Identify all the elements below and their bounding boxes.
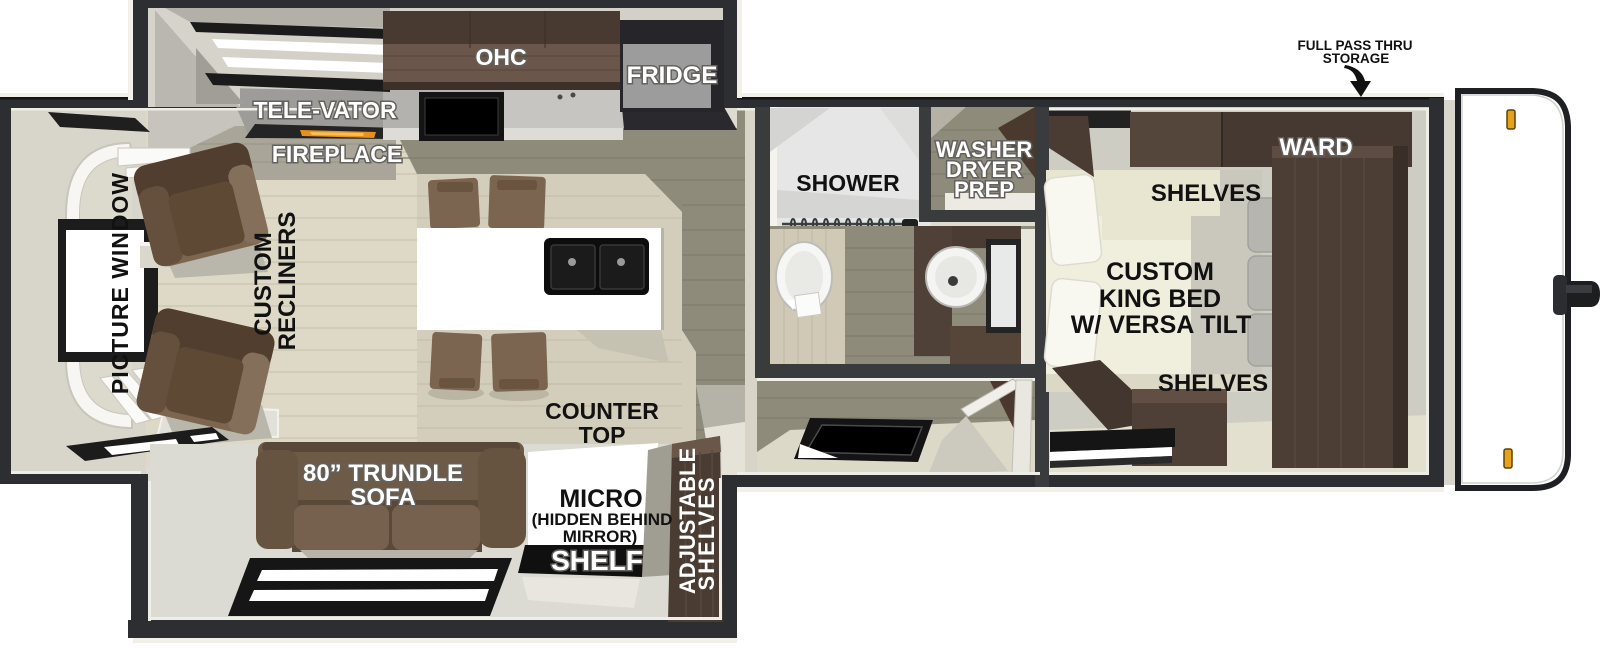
svg-text:MICRO: MICRO bbox=[559, 485, 642, 513]
svg-text:SHELF: SHELF bbox=[551, 545, 643, 576]
svg-text:TOP: TOP bbox=[579, 422, 626, 448]
svg-text:SHELVES: SHELVES bbox=[1158, 370, 1268, 397]
svg-text:SOFA: SOFA bbox=[350, 484, 415, 511]
svg-text:CUSTOM: CUSTOM bbox=[1106, 258, 1214, 286]
svg-text:MIRROR): MIRROR) bbox=[563, 527, 638, 546]
svg-text:FIREPLACE: FIREPLACE bbox=[272, 141, 402, 167]
svg-text:80” TRUNDLE: 80” TRUNDLE bbox=[303, 460, 463, 487]
svg-text:SHELVES: SHELVES bbox=[1151, 180, 1261, 207]
svg-text:RECLINERS: RECLINERS bbox=[274, 212, 301, 351]
svg-text:SHOWER: SHOWER bbox=[796, 170, 900, 196]
svg-text:CUSTOM: CUSTOM bbox=[250, 232, 277, 336]
svg-text:PICTURE WINDOW: PICTURE WINDOW bbox=[107, 172, 133, 394]
svg-text:WARD: WARD bbox=[1279, 134, 1352, 161]
svg-text:FRIDGE: FRIDGE bbox=[627, 62, 718, 89]
svg-text:COUNTER: COUNTER bbox=[545, 398, 659, 424]
svg-text:W/ VERSA TILT: W/ VERSA TILT bbox=[1071, 311, 1252, 339]
svg-text:OHC: OHC bbox=[475, 44, 526, 70]
svg-text:PREP: PREP bbox=[954, 177, 1014, 202]
svg-text:STORAGE: STORAGE bbox=[1323, 51, 1390, 66]
svg-text:TELE-VATOR: TELE-VATOR bbox=[253, 97, 397, 123]
svg-text:KING BED: KING BED bbox=[1099, 285, 1221, 313]
svg-text:SHELVES: SHELVES bbox=[694, 475, 719, 590]
